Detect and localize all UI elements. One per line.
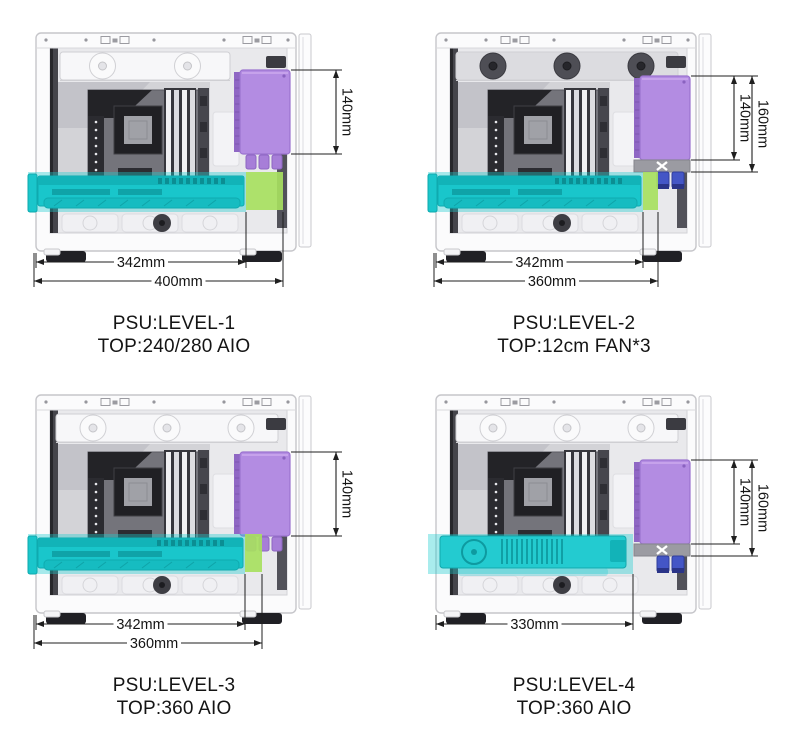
panel-caption: PSU:LEVEL-2 TOP:12cm FAN*3 bbox=[400, 312, 748, 358]
case-illustration-level-4: 140mm160mm330mm bbox=[400, 362, 800, 672]
gpu-card bbox=[428, 534, 633, 576]
vent-icon bbox=[113, 401, 118, 405]
psu-height-dimension: 140mm bbox=[339, 468, 356, 520]
psu-height-dim-label: 140mm bbox=[737, 478, 753, 526]
psu-height-dim-label: 160mm bbox=[755, 484, 771, 532]
psu-level-label: PSU:LEVEL-2 bbox=[400, 312, 748, 335]
screw-icon bbox=[622, 400, 625, 403]
gpu-card bbox=[428, 172, 658, 212]
motherboard bbox=[58, 444, 210, 542]
depth-dim-label: 342mm bbox=[116, 617, 164, 633]
depth-dim-label: 360mm bbox=[528, 274, 576, 290]
motherboard bbox=[458, 444, 610, 542]
screw-icon bbox=[552, 38, 555, 41]
psu-level-label: PSU:LEVEL-3 bbox=[0, 674, 348, 697]
side-glass-panel bbox=[699, 396, 711, 609]
panel-level-4: 140mm160mm330mm PSU:LEVEL-4 TOP:360 AIO bbox=[400, 362, 800, 733]
screw-icon bbox=[222, 38, 225, 41]
screw-icon bbox=[286, 38, 289, 41]
side-glass-panel bbox=[699, 34, 711, 247]
motherboard bbox=[58, 82, 210, 180]
psu-with-limit-mark bbox=[634, 460, 690, 573]
psu-height-dim-label: 160mm bbox=[755, 100, 771, 148]
side-glass-panel bbox=[299, 396, 311, 609]
screw-icon bbox=[222, 400, 225, 403]
case-illustration-level-3: 140mm342mm360mm bbox=[0, 362, 400, 672]
screw-icon bbox=[552, 400, 555, 403]
psu-body bbox=[640, 460, 690, 544]
psu-level-label: PSU:LEVEL-4 bbox=[400, 674, 748, 697]
top-support-label: TOP:12cm FAN*3 bbox=[400, 335, 748, 358]
screw-icon bbox=[444, 38, 447, 41]
vent-icon bbox=[655, 401, 660, 405]
vent-icon bbox=[113, 39, 118, 43]
depth-dim-label: 330mm bbox=[510, 617, 558, 633]
psu-cable-plug bbox=[246, 155, 256, 169]
top-radiator bbox=[456, 414, 678, 443]
psu-height-dim-label: 140mm bbox=[339, 88, 355, 136]
case-illustration-level-1: 140mm342mm400mm bbox=[0, 0, 400, 310]
extra-clearance-zone bbox=[643, 172, 658, 210]
vent-icon bbox=[255, 401, 260, 405]
vent-icon bbox=[255, 39, 260, 43]
rear-io-socket bbox=[666, 418, 686, 430]
panel-caption: PSU:LEVEL-3 TOP:360 AIO bbox=[0, 674, 348, 720]
depth-dim-label: 342mm bbox=[117, 255, 165, 271]
vent-icon bbox=[513, 401, 518, 405]
screw-icon bbox=[44, 38, 47, 41]
side-glass-panel bbox=[299, 34, 311, 247]
screw-icon bbox=[84, 400, 87, 403]
screw-icon bbox=[444, 400, 447, 403]
psu-cable-plug bbox=[272, 155, 282, 169]
psu-cable-plug bbox=[272, 537, 282, 551]
gpu-bracket bbox=[428, 174, 437, 212]
psu-height-dimension: 160mm bbox=[755, 482, 772, 534]
panel-level-2: 140mm160mm342mm360mm PSU:LEVEL-2 TOP:12c… bbox=[400, 0, 800, 371]
vent-icon bbox=[655, 39, 660, 43]
gpu-card bbox=[28, 172, 283, 212]
case-illustration-holder-level-1: 140mm342mm400mm bbox=[0, 0, 400, 310]
spec-diagram-canvas: 140mm342mm400mm PSU:LEVEL-1 TOP:240/280 … bbox=[0, 0, 800, 742]
psu-height-dimension: 140mm bbox=[737, 92, 754, 144]
panel-level-3: 140mm342mm360mm PSU:LEVEL-3 TOP:360 AIO bbox=[0, 362, 400, 733]
psu-cable-plug bbox=[259, 155, 269, 169]
gpu-card bbox=[28, 534, 262, 574]
top-support-label: TOP:360 AIO bbox=[400, 697, 748, 720]
bottom-fans bbox=[62, 214, 238, 232]
screw-icon bbox=[484, 38, 487, 41]
panel-caption: PSU:LEVEL-4 TOP:360 AIO bbox=[400, 674, 748, 720]
motherboard bbox=[458, 82, 610, 180]
case-illustration-holder-level-3: 140mm342mm360mm bbox=[0, 362, 400, 672]
panel-caption: PSU:LEVEL-1 TOP:240/280 AIO bbox=[0, 312, 348, 358]
depth-dim-label: 400mm bbox=[154, 274, 202, 290]
top-radiator bbox=[56, 414, 278, 443]
psu-body bbox=[640, 76, 690, 160]
extra-clearance-zone bbox=[246, 172, 283, 210]
bottom-fans bbox=[462, 576, 638, 594]
psu-height-dim-label: 140mm bbox=[339, 470, 355, 518]
screw-icon bbox=[484, 400, 487, 403]
screw-icon bbox=[44, 400, 47, 403]
screw-icon bbox=[622, 38, 625, 41]
psu-height-dimension: 140mm bbox=[737, 476, 754, 528]
panel-level-1: 140mm342mm400mm PSU:LEVEL-1 TOP:240/280 … bbox=[0, 0, 400, 371]
screw-icon bbox=[152, 400, 155, 403]
screw-icon bbox=[686, 38, 689, 41]
top-support-label: TOP:360 AIO bbox=[0, 697, 348, 720]
psu-standard bbox=[234, 70, 290, 169]
top-support-label: TOP:240/280 AIO bbox=[0, 335, 348, 358]
bottom-fans bbox=[62, 576, 238, 594]
top-radiator bbox=[60, 52, 230, 81]
psu-body bbox=[240, 452, 290, 536]
screw-icon bbox=[152, 38, 155, 41]
extra-clearance-zone bbox=[245, 534, 262, 572]
psu-body bbox=[240, 70, 290, 154]
screw-icon bbox=[686, 400, 689, 403]
depth-dim-label: 342mm bbox=[515, 255, 563, 271]
rear-io-socket bbox=[666, 56, 686, 68]
psu-level-label: PSU:LEVEL-1 bbox=[0, 312, 348, 335]
case-illustration-level-2: 140mm160mm342mm360mm bbox=[400, 0, 800, 310]
vent-icon bbox=[513, 39, 518, 43]
screw-icon bbox=[286, 400, 289, 403]
rear-io-socket bbox=[266, 418, 286, 430]
bottom-fans bbox=[462, 214, 638, 232]
gpu-bracket bbox=[28, 536, 37, 574]
screw-icon bbox=[84, 38, 87, 41]
case-illustration-holder-level-2: 140mm160mm342mm360mm bbox=[400, 0, 800, 310]
psu-height-dim-label: 140mm bbox=[737, 94, 753, 142]
case-illustration-holder-level-4: 140mm160mm330mm bbox=[400, 362, 800, 672]
gpu-bracket bbox=[28, 174, 37, 212]
psu-height-dimension: 160mm bbox=[755, 98, 772, 150]
psu-height-dimension: 140mm bbox=[339, 86, 356, 138]
rear-io-socket bbox=[266, 56, 286, 68]
depth-dim-label: 360mm bbox=[130, 636, 178, 652]
